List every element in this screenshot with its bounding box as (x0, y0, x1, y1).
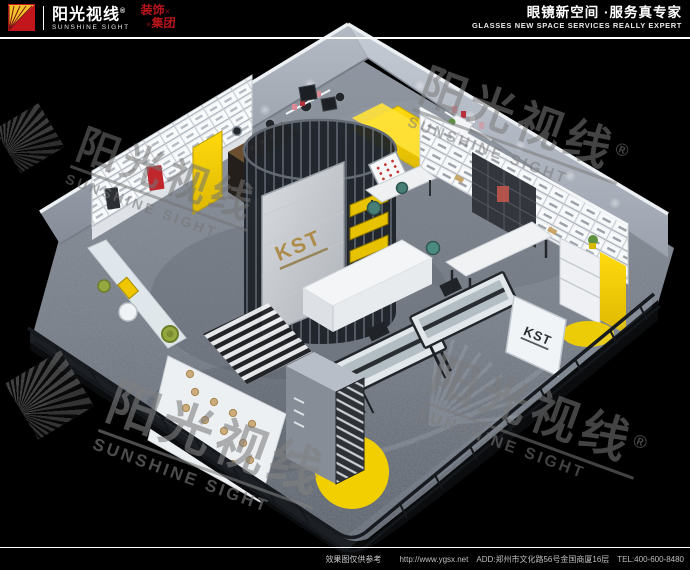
header-slogan: 眼镜新空间 ·服务真专家 GLASSES NEW SPACE SERVICES … (472, 5, 682, 31)
panel-poster (497, 186, 509, 202)
footer-url: http://www.ygsx.net (399, 555, 468, 564)
header-bar: 阳光视线® SUNSHINE SIGHT 装饰✕ ✕集团 眼镜新空间 ·服务真专… (0, 0, 690, 36)
decoration-group-label: 装饰✕ ✕集团 (139, 5, 177, 31)
brand-name-cn: 阳光视线® (52, 4, 130, 23)
logo-divider (43, 6, 44, 30)
footer-rule (0, 547, 690, 548)
footer-address: ADD:郑州市文化路56号金国商厦16层 (476, 554, 609, 565)
store-render: KST (0, 0, 690, 570)
footer-bar: 效果图仅供参考 http://www.ygsx.net ADD:郑州市文化路56… (0, 549, 690, 569)
footer-tel: TEL:400-600-8480 (617, 555, 684, 564)
brand-name-en: SUNSHINE SIGHT (52, 24, 130, 32)
brand-logo: 阳光视线® SUNSHINE SIGHT 装饰✕ ✕集团 (8, 4, 176, 31)
header-rule (0, 37, 690, 39)
poster-canvas: { "header": { "logo": { "brand_cn": "阳光视… (0, 0, 690, 570)
footer-disclaimer: 效果图仅供参考 (325, 554, 381, 565)
brand-logo-icon (8, 4, 35, 31)
slogan-en: GLASSES NEW SPACE SERVICES REALLY EXPERT (472, 21, 682, 31)
slogan-cn: 眼镜新空间 ·服务真专家 (472, 5, 682, 21)
